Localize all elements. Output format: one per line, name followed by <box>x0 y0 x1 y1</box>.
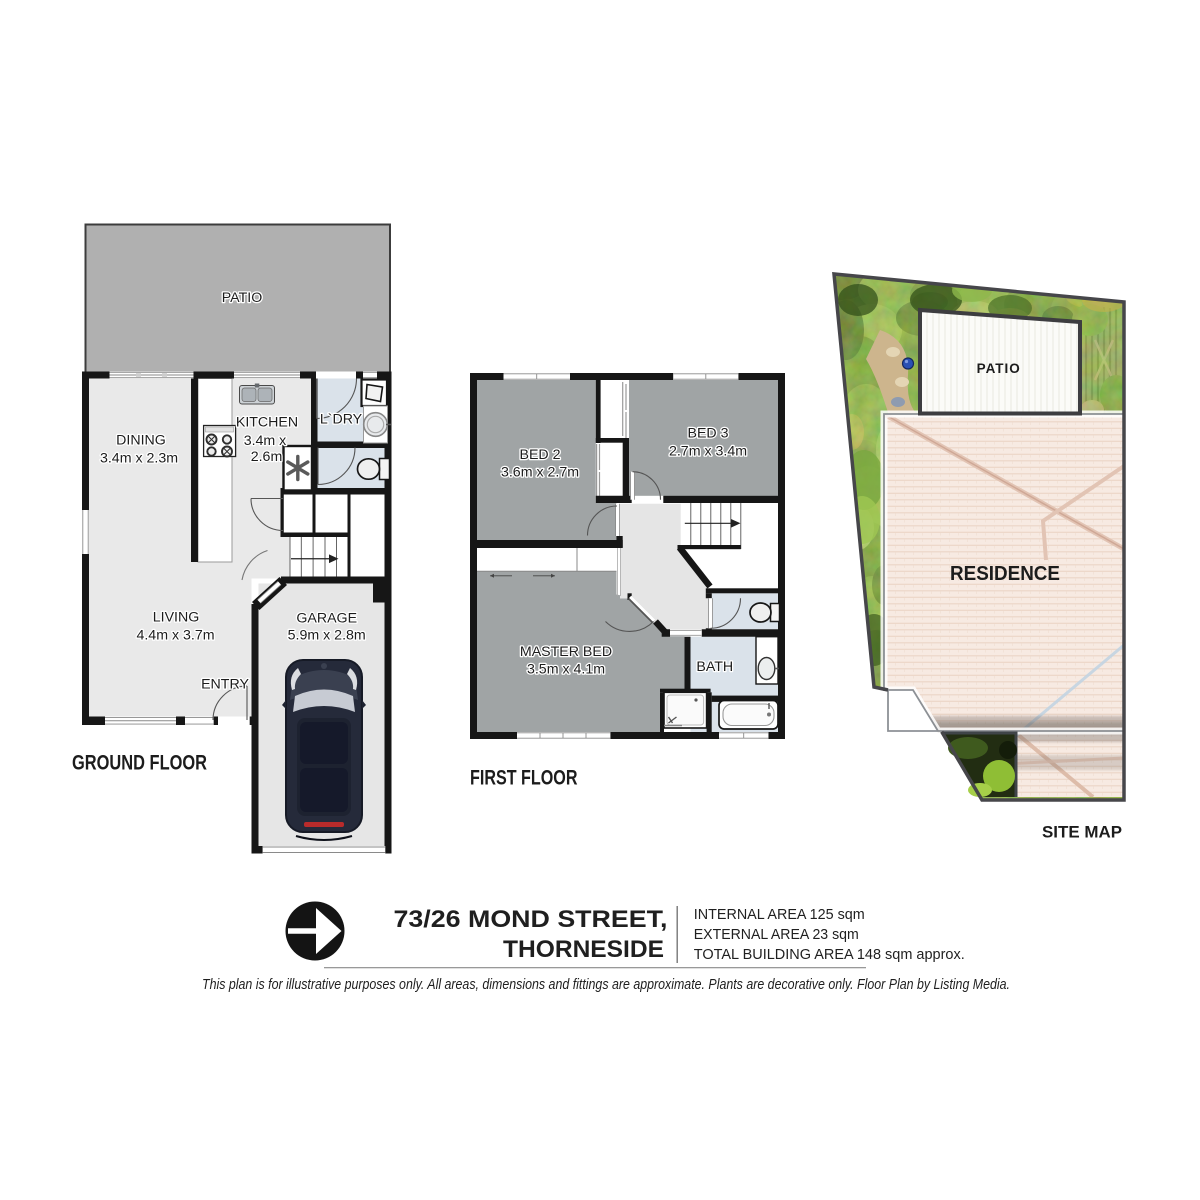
svg-text:BED 3: BED 3 <box>687 426 728 442</box>
svg-text:EXTERNAL AREA 23 sqm: EXTERNAL AREA 23 sqm <box>694 926 859 943</box>
svg-text:THORNESIDE: THORNESIDE <box>503 936 664 963</box>
svg-text:4.4m x 3.7m: 4.4m x 3.7m <box>136 628 214 644</box>
svg-text:3.6m x 2.7m: 3.6m x 2.7m <box>501 465 579 481</box>
svg-text:3.5m x 4.1m: 3.5m x 4.1m <box>527 662 605 678</box>
svg-text:ENTRY: ENTRY <box>201 677 249 693</box>
svg-text:TOTAL BUILDING AREA 148 sqm ap: TOTAL BUILDING AREA 148 sqm approx. <box>694 946 965 963</box>
svg-text:GARAGE: GARAGE <box>296 610 357 626</box>
svg-text:FIRST FLOOR: FIRST FLOOR <box>470 767 578 790</box>
svg-text:PATIO: PATIO <box>222 290 262 306</box>
svg-text:L`DRY: L`DRY <box>320 412 363 428</box>
svg-text:MASTER BED: MASTER BED <box>520 644 612 660</box>
svg-text:73/26 MOND STREET,: 73/26 MOND STREET, <box>394 906 668 933</box>
svg-text:BED 2: BED 2 <box>519 447 560 463</box>
svg-text:GROUND FLOOR: GROUND FLOOR <box>72 752 207 775</box>
svg-text:This plan is for illustrative: This plan is for illustrative purposes o… <box>202 976 1010 993</box>
svg-text:PATIO: PATIO <box>977 361 1021 376</box>
svg-text:5.9m x 2.8m: 5.9m x 2.8m <box>288 628 366 644</box>
svg-text:3.4m x 2.3m: 3.4m x 2.3m <box>100 450 178 466</box>
svg-text:3.4m x: 3.4m x <box>244 433 287 449</box>
svg-text:BATH: BATH <box>696 659 733 675</box>
svg-text:INTERNAL AREA 125 sqm: INTERNAL AREA 125 sqm <box>694 906 865 923</box>
svg-text:2.7m x 3.4m: 2.7m x 3.4m <box>669 444 747 460</box>
svg-text:LIVING: LIVING <box>153 610 200 626</box>
svg-text:RESIDENCE: RESIDENCE <box>950 562 1060 585</box>
svg-text:KITCHEN: KITCHEN <box>236 415 298 431</box>
svg-text:2.6m: 2.6m <box>251 449 283 465</box>
svg-text:SITE MAP: SITE MAP <box>1042 823 1122 842</box>
svg-text:DINING: DINING <box>116 433 166 449</box>
